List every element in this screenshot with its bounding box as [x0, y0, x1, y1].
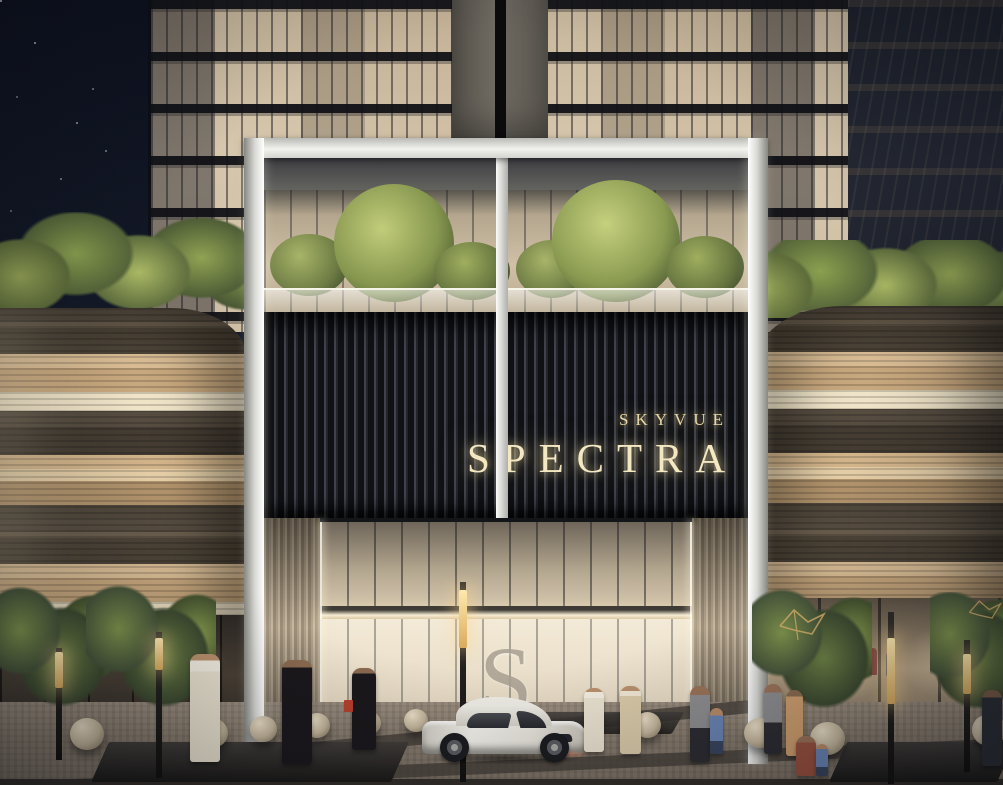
pedestrian-white-thobe [190, 654, 220, 762]
star-field [0, 0, 2, 2]
terrace-tree [552, 180, 680, 302]
sphere-bollard [70, 718, 104, 750]
sports-car [422, 690, 588, 762]
origami-bird-decor [778, 606, 826, 642]
adjacent-dark-tower [848, 0, 1003, 272]
stone-bench-right [829, 742, 1003, 782]
architectural-rendering: SKYVUE SPECTRA S [0, 0, 1003, 785]
pedestrian-black-abaya [282, 660, 312, 764]
sign-text-skyvue: SKYVUE [619, 410, 730, 430]
pedestrian-beige-thobe [620, 686, 641, 754]
podium-rooftop-trees-left [0, 212, 252, 316]
car-side-window [466, 713, 512, 728]
pedestrian-backpack-man [764, 684, 782, 754]
light-pole [964, 640, 970, 772]
portal-frame-column-left [244, 138, 264, 764]
portal-frame-top [244, 138, 768, 158]
core-expansion-joint [495, 0, 506, 152]
striped-podium-right [758, 306, 1003, 612]
seated-woman [796, 736, 816, 776]
pedestrian-child [710, 708, 723, 754]
car-wheel-rear [440, 733, 469, 762]
light-pole [888, 612, 894, 784]
pedestrian-white-thobe [584, 688, 604, 752]
light-pole [56, 648, 62, 760]
striped-podium-left [0, 308, 246, 624]
sphere-bollard [250, 716, 277, 742]
light-pole [156, 632, 162, 778]
entrance-canopy [320, 606, 692, 619]
tower-core-column [452, 0, 548, 152]
pedestrian-dark-clothes [982, 690, 1002, 766]
seated-child [816, 744, 828, 776]
car-wheel-front [540, 733, 569, 762]
shopping-bag [344, 700, 353, 712]
portal-frame-divider [496, 156, 508, 518]
terrace-tree [334, 184, 454, 302]
pedestrian-black-abaya [352, 668, 376, 750]
lobby-upper-glazing [320, 522, 692, 608]
origami-bird-decor [968, 598, 1002, 624]
pedestrian-grey-shirt [690, 686, 710, 762]
